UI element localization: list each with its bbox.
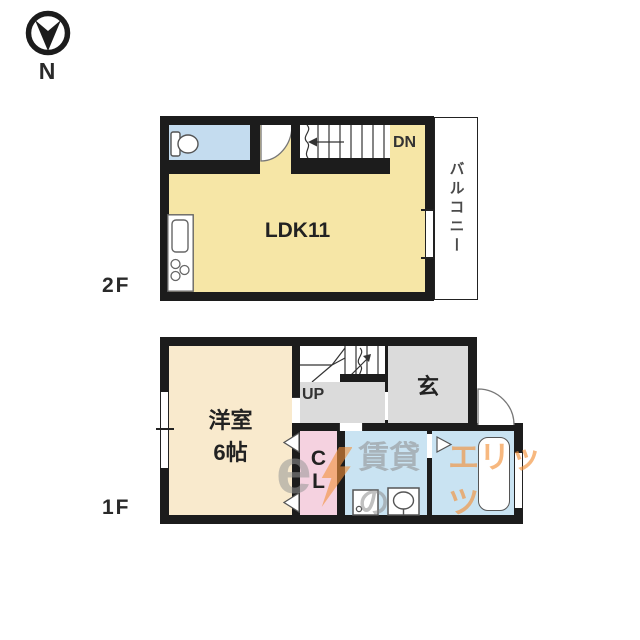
door-triangle-icon xyxy=(283,492,300,513)
floor2-stairs-label: DN xyxy=(393,134,416,152)
floor1-bath-window xyxy=(514,453,523,508)
floor1-stair-bar-wall xyxy=(340,374,385,382)
floor2-wall-below-toilet xyxy=(160,160,260,174)
floor1-room-label: 洋室 xyxy=(169,403,292,435)
floor1-wall-right-upper xyxy=(468,337,477,430)
front-door-swing-icon xyxy=(477,388,515,426)
washbasin-icon xyxy=(387,487,420,516)
door-swing-icon xyxy=(260,125,293,162)
floor1-stairs-label: UP xyxy=(302,386,324,404)
closet-label-l: L xyxy=(300,470,337,493)
toilet-icon xyxy=(170,129,200,159)
floor1-entrance-label: 玄 xyxy=(417,369,439,401)
floor2-balcony-label: バルコニー xyxy=(446,161,467,256)
floor2-balcony: バルコニー xyxy=(434,117,478,300)
floor1-closet-label: C L xyxy=(300,447,337,493)
floor1-wall-top xyxy=(160,337,477,346)
closet-label-c: C xyxy=(300,447,337,470)
floor2-stair-bottom-wall xyxy=(291,158,390,174)
floor2-ldk-label: LDK11 xyxy=(250,219,345,243)
stairs-down-icon xyxy=(300,125,390,158)
floor1-label: 1F xyxy=(102,496,131,520)
floor2-wall-right-of-toilet xyxy=(250,116,260,174)
floor1-entrance-opening xyxy=(385,392,388,420)
floor1-wall-closet-right xyxy=(337,431,345,515)
floor1-wall-bottom xyxy=(160,515,523,524)
floor1-bath-door-opening xyxy=(427,434,432,458)
kitchen-counter-icon xyxy=(167,214,194,292)
compass-north-label: N xyxy=(35,58,61,85)
floor1-westernroom-door-opening xyxy=(292,397,300,425)
floor1-room-size: 6帖 xyxy=(169,435,292,467)
floor1-washroom-door-opening xyxy=(339,423,363,431)
floor2-label: 2F xyxy=(102,274,131,298)
floor2-balcony-window xyxy=(425,210,434,258)
washing-machine-icon xyxy=(352,489,379,516)
door-triangle-icon xyxy=(436,436,453,453)
north-compass-icon xyxy=(25,10,71,56)
floor1-left-window xyxy=(160,392,169,468)
floor1-western-room-labels: 洋室 6帖 xyxy=(169,403,292,467)
bathtub-icon xyxy=(478,437,510,511)
floorplan-canvas: N 2F DN LDK11 xyxy=(0,0,640,640)
floor1-entrance: 玄 xyxy=(388,346,468,423)
